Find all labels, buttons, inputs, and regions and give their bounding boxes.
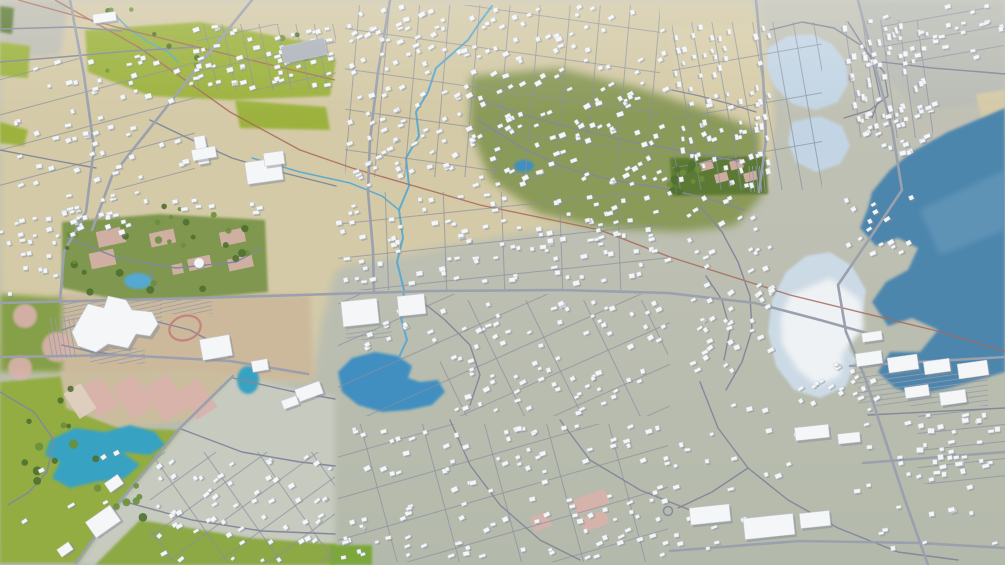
horizon-haze [0,0,1005,120]
center-commercial-1 [341,298,381,329]
ballfield-3 [8,356,32,380]
pond-tc [514,160,534,172]
commercial-bc-3 [799,510,832,531]
city-3d-render [0,0,1005,565]
center-commercial-2 [397,293,428,318]
commercial-bc-5 [838,432,863,447]
ballfield-1 [13,304,37,328]
map-viewport[interactable] [0,0,1005,565]
pond-campus [124,273,152,289]
school-annex [263,150,287,168]
